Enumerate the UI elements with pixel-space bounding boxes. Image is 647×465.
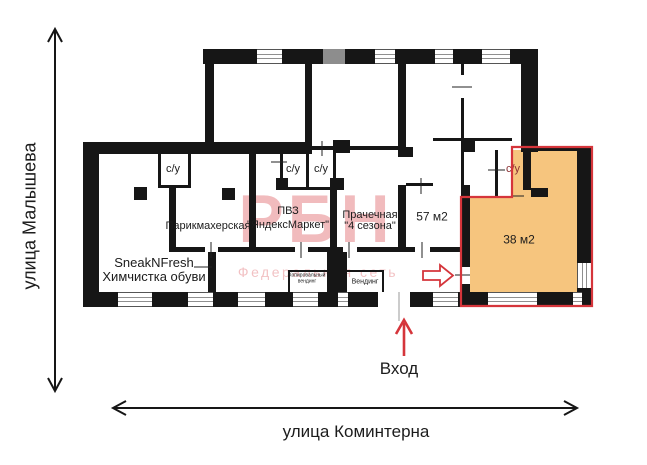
wall [348, 292, 378, 307]
wall [398, 64, 406, 157]
wall [406, 147, 413, 157]
wall [453, 49, 482, 64]
window [482, 49, 510, 64]
room-label-sneaknfresh: SneakNFresh [114, 256, 193, 270]
wall [83, 142, 312, 154]
wall [461, 141, 464, 185]
floor-plan: РБН Федеральная сеть [0, 0, 647, 465]
wall-gray-segment [323, 49, 345, 64]
wall [410, 292, 433, 307]
street-arrow-horizontal-icon [113, 401, 577, 415]
room-label-copy-vending-sub: вендинг [298, 279, 316, 284]
window [238, 292, 265, 307]
window [338, 292, 348, 307]
window [375, 49, 395, 64]
window [118, 292, 152, 307]
room-label-pvz-sub: "ЯндексМаркет" [247, 220, 329, 232]
unit-entry-arrow-icon [423, 265, 453, 286]
wall [461, 98, 464, 141]
street-label-kominterna: улица Коминтерна [283, 423, 430, 441]
entrance-arrow-icon [396, 320, 412, 356]
bathroom-label: с/у [314, 164, 328, 176]
wall [461, 64, 464, 75]
wall [218, 247, 295, 252]
wall [430, 247, 462, 252]
street-arrow-vertical-icon [48, 29, 62, 391]
room-label-57m2: 57 м2 [416, 211, 448, 224]
wall [357, 247, 415, 252]
wall [406, 183, 433, 186]
room-label-laundry-sub: "4 сезона" [344, 221, 396, 233]
entrance-label: Вход [380, 360, 418, 378]
wall [523, 150, 531, 190]
wall [521, 49, 538, 152]
wall [318, 292, 338, 307]
wall [577, 150, 592, 263]
wall [188, 150, 191, 188]
wall [345, 49, 375, 64]
wall [83, 142, 99, 307]
wall [463, 138, 475, 152]
wall [531, 188, 548, 197]
room-label-38m2: 38 м2 [503, 234, 535, 247]
room-label-vending: Вендинг [352, 278, 379, 285]
bathroom-label: с/у [286, 164, 300, 176]
wall [327, 252, 347, 292]
wall [347, 270, 384, 272]
wall [458, 292, 488, 307]
bathroom-label-unit38: с/у [506, 164, 520, 176]
window [435, 49, 453, 64]
window [488, 292, 537, 307]
wall [208, 252, 216, 292]
window [188, 292, 213, 307]
wall [312, 146, 398, 150]
street-label-malysheva: улица Малышева [21, 143, 40, 290]
window [573, 292, 582, 307]
wall [582, 292, 592, 307]
room-label-hairdresser: Парикмахерская [165, 221, 250, 233]
wall [83, 292, 118, 307]
wall [461, 185, 470, 267]
wall [398, 185, 406, 252]
wall [169, 247, 205, 252]
column [134, 187, 147, 200]
wall [280, 187, 308, 190]
window [293, 292, 318, 307]
window [577, 263, 592, 288]
wall [205, 49, 214, 152]
wall [333, 150, 336, 178]
window [433, 292, 458, 307]
wall [537, 292, 577, 307]
bathroom-label: с/у [166, 164, 180, 176]
room-label-sneaknfresh-sub: Химчистка обуви [102, 270, 205, 284]
wall [382, 270, 384, 292]
column [333, 140, 350, 153]
wall [265, 292, 293, 307]
wall [306, 150, 309, 190]
wall [395, 49, 435, 64]
wall [152, 292, 188, 307]
wall [495, 150, 498, 197]
wall [305, 64, 312, 152]
room-label-pvz: ПВЗ [277, 206, 299, 218]
wall [461, 284, 470, 292]
wall [158, 150, 161, 188]
window [257, 49, 282, 64]
wall [213, 292, 238, 307]
wall [282, 49, 323, 64]
wall [330, 185, 337, 247]
column [222, 188, 235, 200]
